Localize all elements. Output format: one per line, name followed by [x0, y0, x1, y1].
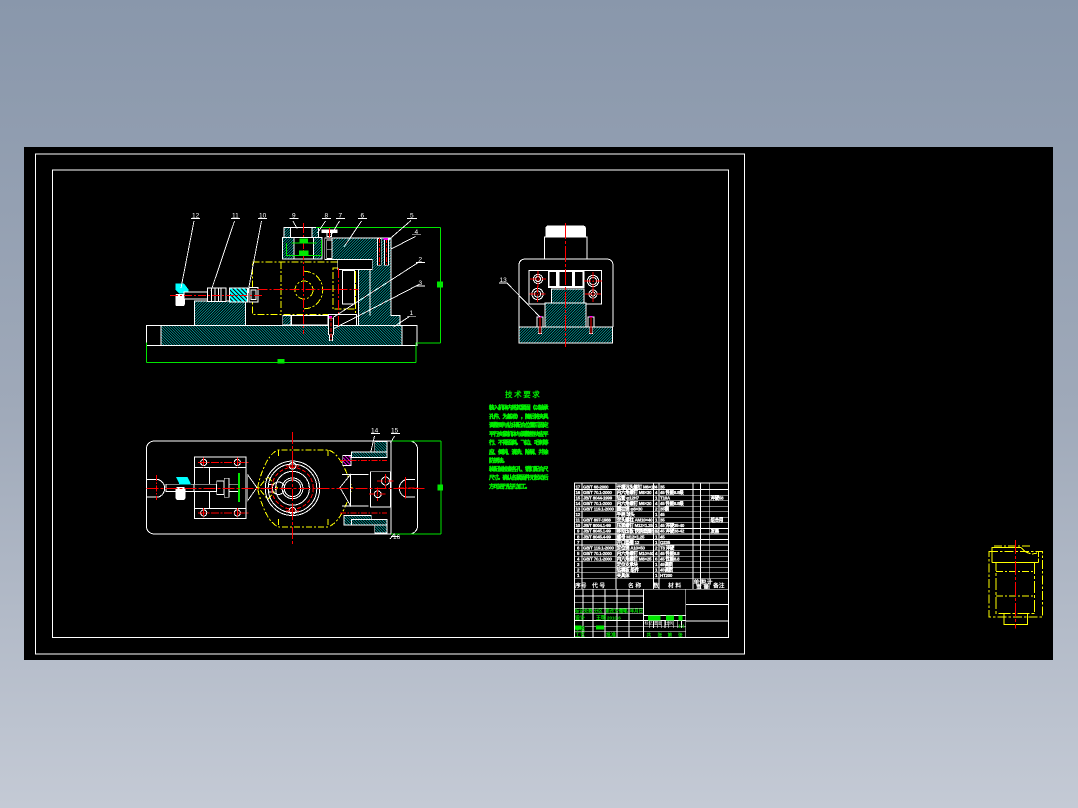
- svg-text:夹具体: 夹具体: [617, 572, 630, 579]
- svg-text:13: 13: [500, 277, 508, 284]
- svg-text:共: 共: [647, 632, 652, 639]
- svg-text:材 料: 材 料: [667, 582, 681, 590]
- svg-text:16: 16: [393, 534, 401, 541]
- svg-text:4: 4: [415, 229, 419, 236]
- svg-text:GB/T 68-2000: GB/T 68-2000: [583, 484, 609, 489]
- svg-text:GB/T 119.1-2000: GB/T 119.1-2000: [583, 507, 614, 512]
- svg-text:8: 8: [325, 213, 329, 220]
- svg-text:5: 5: [410, 213, 414, 220]
- svg-text:15: 15: [391, 428, 399, 435]
- svg-text:尺寸。确认各紧固件无松动后: 尺寸。确认各紧固件无松动后: [489, 474, 549, 482]
- svg-text:张: 张: [658, 632, 663, 639]
- svg-text:12: 12: [576, 512, 581, 517]
- svg-text:JB/T 8045.4-99: JB/T 8045.4-99: [583, 534, 611, 539]
- svg-text:设计: 设计: [575, 614, 585, 621]
- svg-text:GB/T 119.1-2000: GB/T 119.1-2000: [583, 545, 614, 550]
- svg-text:行、不得歪斜。飞边、毛刺等: 行、不得歪斜。飞边、毛刺等: [488, 439, 549, 447]
- svg-text:发黑: 发黑: [710, 528, 720, 535]
- svg-text:批准: 批准: [606, 631, 616, 638]
- svg-text:标记: 标记: [645, 620, 653, 626]
- svg-text:名 称: 名 称: [628, 582, 641, 590]
- svg-text:技术要求: 技术要求: [505, 389, 541, 399]
- svg-text:比例: 比例: [665, 620, 673, 626]
- svg-text:应、倒钝、清洗、除屑、并涂: 应、倒钝、清洗、除屑、并涂: [489, 448, 549, 456]
- svg-text:10: 10: [259, 213, 267, 220]
- svg-text:调整到与钻床配合位置后固定: 调整到与钻床配合位置后固定: [489, 421, 549, 429]
- svg-text:GB/T 70.1-2000: GB/T 70.1-2000: [583, 557, 612, 562]
- svg-text:GB/T 70.1-2000: GB/T 70.1-2000: [583, 551, 612, 556]
- svg-text:1:1: 1:1: [678, 623, 685, 628]
- svg-text:3: 3: [419, 280, 423, 287]
- svg-text:装配前检查各孔、销钉配合尺: 装配前检查各孔、销钉配合尺: [489, 465, 549, 473]
- svg-text:备注: 备注: [712, 582, 725, 590]
- svg-text:6: 6: [361, 213, 365, 220]
- svg-text:重量: 重量: [654, 620, 662, 626]
- svg-text:GB/T 897-1988: GB/T 897-1988: [583, 518, 611, 523]
- svg-text:45: 45: [660, 512, 665, 517]
- svg-text:平行夹紧机体与调整垫块应平: 平行夹紧机体与调整垫块应平: [489, 430, 549, 438]
- svg-text:年月日: 年月日: [630, 608, 643, 615]
- svg-text:13: 13: [576, 507, 581, 512]
- svg-text:JB/T 8004.1-99: JB/T 8004.1-99: [583, 523, 611, 528]
- svg-text:组合用: 组合用: [711, 517, 724, 524]
- svg-text:王明: 王明: [596, 614, 606, 621]
- svg-text:17: 17: [576, 484, 581, 489]
- svg-text:11: 11: [576, 518, 581, 523]
- svg-text:10: 10: [576, 523, 581, 528]
- svg-text:GB/T 70.1-2000: GB/T 70.1-2000: [583, 501, 612, 506]
- svg-text:1: 1: [410, 310, 414, 317]
- svg-text:装入机体内将其紧固（以轴承: 装入机体内将其紧固（以轴承: [489, 404, 549, 412]
- svg-text:张: 张: [678, 632, 683, 639]
- svg-text:14: 14: [371, 428, 379, 435]
- svg-text:第: 第: [668, 632, 673, 639]
- svg-text:2: 2: [419, 257, 423, 264]
- svg-text:16: 16: [576, 490, 581, 495]
- svg-text:35: 35: [660, 484, 665, 489]
- svg-text:序号: 序号: [575, 582, 587, 590]
- svg-text:2010.6: 2010.6: [607, 615, 621, 620]
- svg-text:处数: 处数: [583, 608, 593, 615]
- svg-text:JB/T 8045.1-99: JB/T 8045.1-99: [583, 529, 611, 534]
- svg-text:工艺: 工艺: [575, 631, 585, 638]
- svg-text:方可进行钻孔加工。: 方可进行钻孔加工。: [489, 483, 530, 491]
- svg-text:14: 14: [576, 501, 581, 506]
- svg-text:签名: 签名: [619, 608, 629, 615]
- svg-text:孔件、为基准），随后将夹具: 孔件、为基准），随后将夹具: [489, 413, 549, 421]
- svg-text:代 号: 代 号: [591, 582, 605, 590]
- svg-text:11: 11: [232, 213, 239, 220]
- svg-text:JB/T 8044-1999: JB/T 8044-1999: [583, 495, 613, 500]
- svg-text:45: 45: [660, 534, 665, 539]
- svg-text:数: 数: [653, 582, 659, 590]
- svg-text:9: 9: [292, 213, 296, 220]
- svg-text:15: 15: [576, 495, 581, 500]
- svg-text:重 量: 重 量: [696, 583, 709, 591]
- svg-text:GB/T 70.1-2000: GB/T 70.1-2000: [583, 490, 612, 495]
- svg-text:7: 7: [339, 213, 343, 220]
- svg-text:35: 35: [660, 518, 665, 523]
- svg-text:淬硬58: 淬硬58: [711, 494, 725, 501]
- svg-text:HT200: HT200: [660, 573, 673, 578]
- svg-text:防锈油。: 防锈油。: [489, 457, 507, 465]
- svg-text:分区: 分区: [594, 608, 603, 615]
- svg-text:12: 12: [192, 213, 200, 220]
- svg-text:标记: 标记: [574, 608, 584, 615]
- svg-text:T10A: T10A: [660, 495, 671, 500]
- svg-text:Q235: Q235: [660, 540, 671, 545]
